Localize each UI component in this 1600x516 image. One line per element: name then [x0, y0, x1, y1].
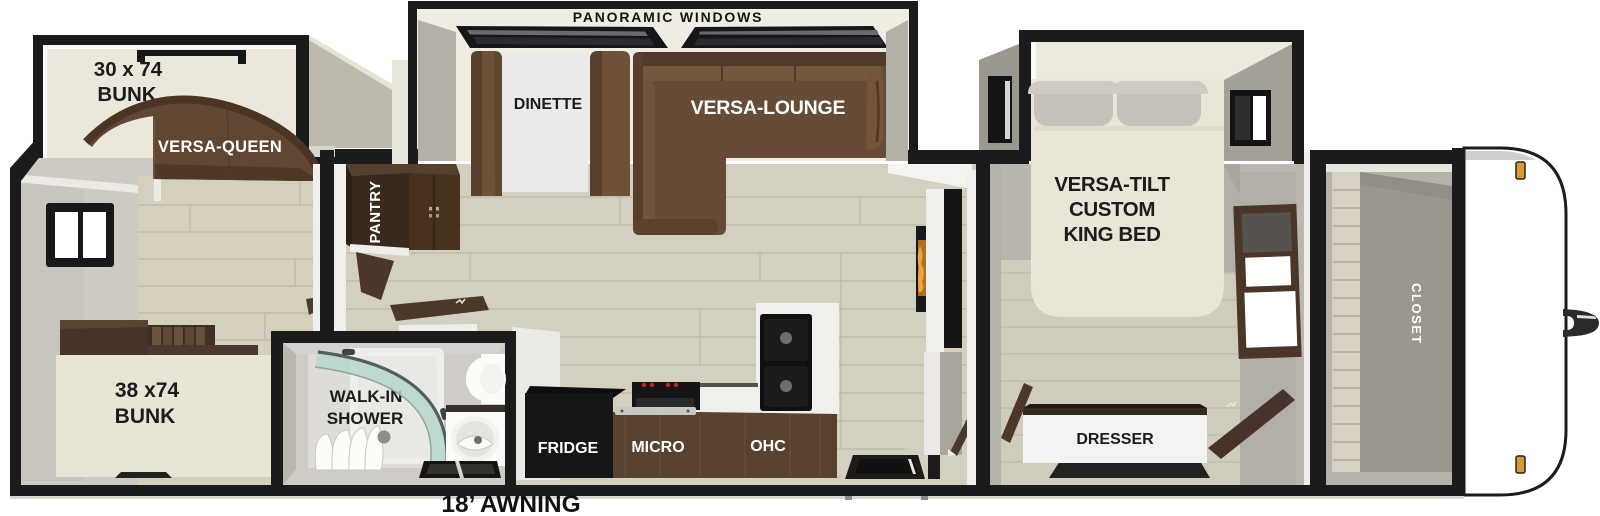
svg-text:DINETTE: DINETTE	[514, 96, 583, 113]
svg-text:MICRO: MICRO	[631, 439, 684, 456]
svg-text:PANORAMIC WINDOWS: PANORAMIC WINDOWS	[573, 9, 764, 25]
svg-text:FRIDGE: FRIDGE	[538, 440, 599, 457]
svg-text:DRESSER: DRESSER	[1076, 431, 1154, 448]
svg-text:OHC: OHC	[750, 438, 786, 455]
svg-text:VERSA-QUEEN: VERSA-QUEEN	[158, 138, 282, 156]
svg-text:VERSA-LOUNGE: VERSA-LOUNGE	[691, 97, 846, 119]
svg-text:KING BED: KING BED	[1063, 223, 1160, 246]
svg-text:VERSA-TILT: VERSA-TILT	[1054, 173, 1170, 196]
svg-text:CLOSET: CLOSET	[1409, 283, 1424, 345]
svg-text:CUSTOM: CUSTOM	[1069, 198, 1155, 221]
svg-text:30 x 74: 30 x 74	[94, 58, 163, 81]
svg-text:PANTRY: PANTRY	[367, 181, 384, 244]
svg-text:18’ AWNING: 18’ AWNING	[441, 491, 580, 516]
svg-text:BUNK: BUNK	[115, 405, 176, 428]
svg-text:38 x74: 38 x74	[115, 379, 180, 402]
svg-text:SHOWER: SHOWER	[327, 409, 404, 428]
